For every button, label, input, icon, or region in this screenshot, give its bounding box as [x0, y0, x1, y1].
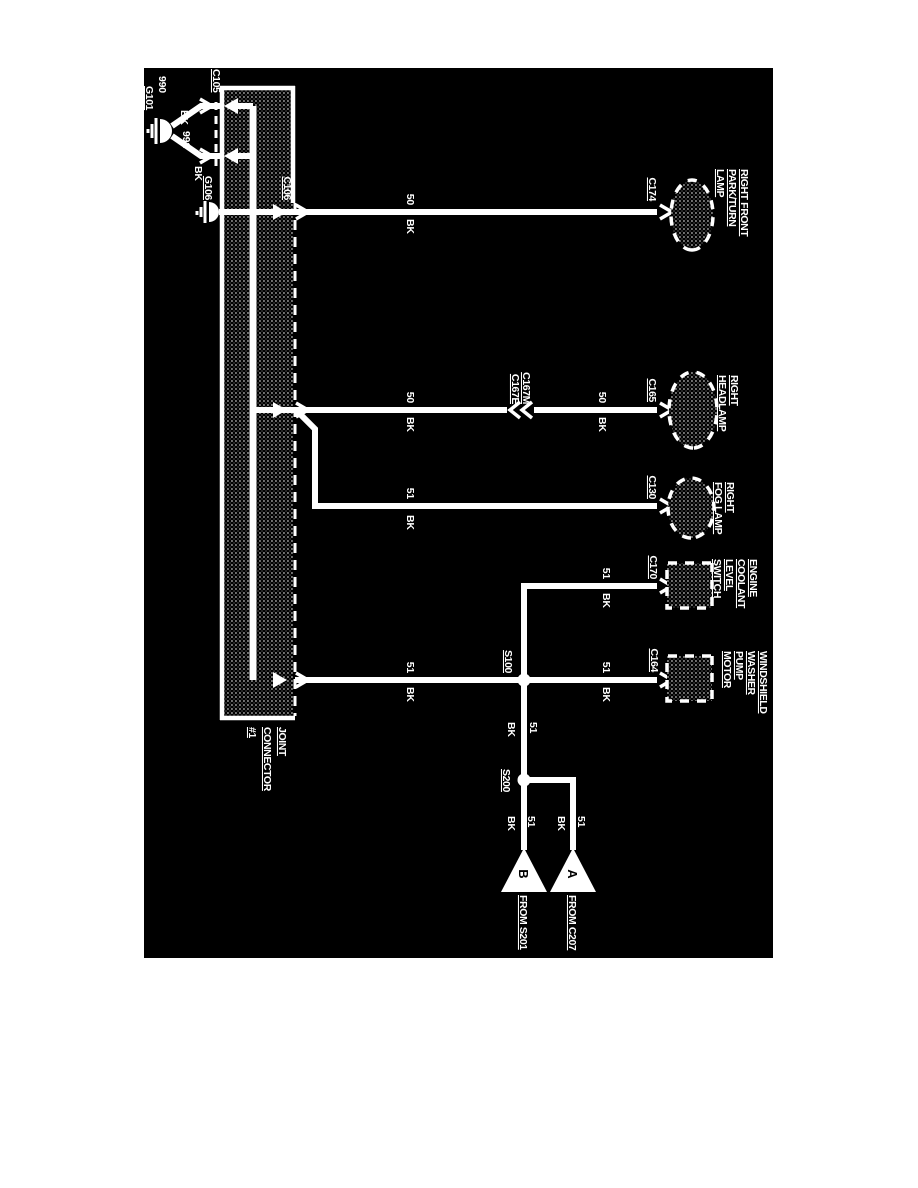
label-circuit-51-cool: 51: [600, 568, 612, 580]
wiring-diagram-svg: C105 990 BK 991 BK G101 G106 C106 JOINT …: [144, 68, 773, 958]
label-c167m: C167M: [520, 372, 532, 405]
s200-to-a-wire: [524, 780, 573, 850]
splice-s200-dot: [518, 774, 531, 787]
label-from-s201: FROM S201: [517, 895, 529, 950]
label-washer-2: WASHER: [745, 651, 757, 696]
g106-ground-bars: [197, 201, 205, 223]
label-color-bk-pt: BK: [404, 219, 416, 234]
label-connector: CONNECTOR: [261, 727, 273, 792]
label-park-turn-3: LAMP: [714, 169, 726, 198]
label-circuit-51-s1s2: 51: [527, 722, 539, 734]
label-washer-4: MOTOR: [721, 651, 733, 689]
label-coolant-2: COOLANT: [735, 559, 747, 609]
label-fog-1: RIGHT: [724, 482, 736, 514]
label-coolant-4: SWITCH: [711, 559, 723, 598]
label-s100: S100: [502, 650, 514, 673]
label-circuit-50-hl-l: 50: [404, 392, 416, 404]
g106-ground-icon: [209, 202, 219, 222]
c167-inline-connector: [507, 402, 534, 418]
label-s200: S200: [500, 769, 512, 792]
coolant-switch-shape: [667, 563, 712, 608]
scanned-document-page: C105 990 BK 991 BK G101 G106 C106 JOINT …: [0, 0, 918, 1188]
g101-ground-icon: [160, 119, 172, 143]
coolant-s100-s200-wire: [524, 586, 657, 850]
label-color-bk-s1s2: BK: [505, 722, 517, 737]
label-color-990: BK: [178, 110, 190, 125]
g101-ground-bars: [148, 118, 156, 144]
label-g106: G106: [202, 176, 214, 201]
label-headlamp-1: RIGHT: [728, 375, 740, 407]
label-color-bk-fog: BK: [404, 515, 416, 530]
label-number1: #1: [246, 727, 258, 738]
label-color-bk-wash: BK: [600, 687, 612, 702]
label-g101: G101: [144, 86, 155, 111]
label-circuit-50-hl-u: 50: [596, 392, 608, 404]
label-color-bk-cool: BK: [600, 593, 612, 608]
label-fog-2: FOG LAMP: [712, 482, 724, 535]
label-c106: C106: [281, 176, 293, 200]
label-joint: JOINT: [276, 727, 288, 757]
label-park-turn-2: PARK/TURN: [726, 169, 738, 226]
rotated-diagram-container: C105 990 BK 991 BK G101 G106 C106 JOINT …: [144, 68, 773, 958]
label-triangle-a: A: [565, 869, 580, 879]
label-circuit-51-box: 51: [404, 662, 416, 674]
label-headlamp-2: HEADLAMP: [716, 375, 728, 432]
label-coolant-1: ENGINE: [747, 559, 759, 597]
label-from-c207: FROM C207: [566, 895, 578, 951]
label-washer-1: WINDSHIELD: [757, 651, 769, 714]
park-turn-lamp-shape: [671, 180, 713, 250]
label-circuit-991: 991: [180, 131, 192, 148]
label-color-bk-box: BK: [404, 687, 416, 702]
label-color-bk-a: BK: [555, 816, 567, 831]
component-shapes: [667, 180, 717, 701]
label-triangle-b: B: [516, 869, 531, 878]
label-c167e: C167E: [509, 374, 521, 405]
label-c105: C105: [210, 69, 222, 93]
splice-s100-dot: [518, 674, 531, 687]
label-park-turn-1: RIGHT FRONT: [738, 169, 750, 237]
label-coolant-3: LEVEL: [723, 559, 735, 592]
label-circuit-51-wash: 51: [600, 662, 612, 674]
washer-motor-shape: [667, 656, 712, 701]
label-circuit-51-b: 51: [525, 816, 537, 828]
fog-lamp-shape: [668, 478, 714, 538]
label-circuit-990: 990: [156, 76, 168, 93]
label-circuit-51-fog: 51: [404, 488, 416, 500]
label-c170: C170: [647, 555, 659, 579]
label-circuit-51-a: 51: [575, 816, 587, 828]
label-circuit-50-pt: 50: [404, 194, 416, 206]
label-color-bk-hl-l: BK: [404, 417, 416, 432]
label-c130: C130: [646, 475, 658, 499]
label-c164: C164: [648, 648, 660, 672]
label-c165: C165: [646, 378, 658, 402]
label-washer-3: PUMP: [733, 651, 745, 680]
label-c174: C174: [646, 177, 658, 201]
headlamp-shape: [669, 372, 717, 448]
label-color-bk-b: BK: [505, 816, 517, 831]
label-color-bk-hl-u: BK: [596, 417, 608, 432]
